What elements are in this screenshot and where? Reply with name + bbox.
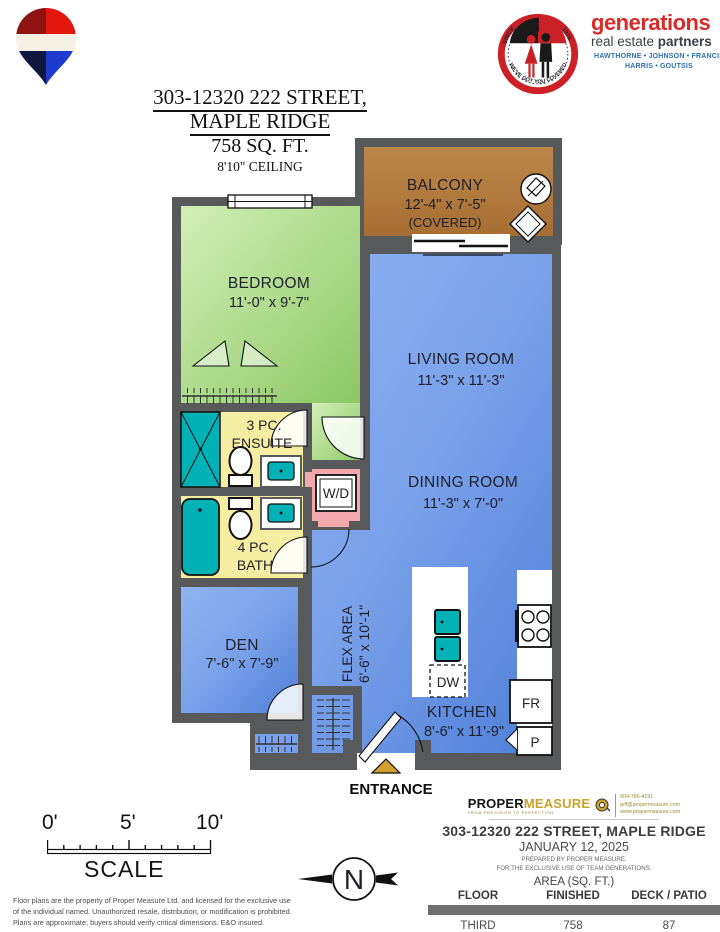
floor-plan-sheet: { "colors": { "wall": "#58595b", "bedroo… (0, 0, 720, 932)
floor-plan: BALCONY 12'-4" x 7'-5" (COVERED) BEDROOM… (165, 138, 565, 798)
entry-closet (256, 736, 297, 752)
flex-area-label: FLEX AREA (339, 605, 355, 682)
bedroom-label: BEDROOM (228, 275, 310, 292)
den-label: DEN (225, 637, 259, 654)
scale-label: SCALE (84, 856, 164, 883)
email: jeff@propermeasure.com (620, 802, 680, 810)
bath-label-line2: BATH (237, 557, 273, 573)
laundry-label: W/D (323, 486, 349, 501)
prepared-by-note: PREPARED BY PROPER MEASURE. FOR THE EXCL… (428, 856, 720, 874)
col-deck: DECK / PATIO (618, 890, 720, 902)
bedroom-window (228, 195, 312, 208)
bath-toilet-icon (229, 498, 252, 539)
listing-address-line2: MAPLE RIDGE (110, 110, 410, 134)
ensuite-label-line2: ENSUITE (232, 435, 293, 451)
dining-room-dims: 11'-3" x 7'-0" (423, 496, 503, 512)
balcony-sliding-door (412, 234, 510, 255)
logo-tagline: FROM PRECISION TO PERFECTION (468, 811, 591, 815)
scale-tick-10: 10' (196, 811, 223, 835)
shower-icon (181, 412, 220, 487)
brand-agents: HAWTHORNE • JOHNSON • FRANCIS HARRIS • G… (591, 52, 720, 73)
balcony-note: (COVERED) (409, 215, 482, 230)
balcony-label: BALCONY (407, 177, 483, 194)
ensuite-sink-icon (261, 456, 301, 487)
ensuite-toilet-icon (229, 447, 252, 486)
cell-finished: 758 (528, 920, 618, 932)
brokerage-logo: SINCE 1976 WE'VE GOT YOU COVERED generat… (492, 12, 720, 96)
table-separator-bar (428, 905, 720, 915)
stove-icon (515, 605, 551, 647)
col-finished: FINISHED (528, 890, 618, 902)
balcony-dims: 12'-4" x 7'-5" (404, 197, 485, 213)
living-room-label: LIVING ROOM (408, 351, 515, 368)
kitchen-label: KITCHEN (427, 704, 497, 721)
flex-area-dims: 6'-6" x 10'-1" (356, 605, 372, 683)
den-dims: 7'-6" x 7'-9" (205, 656, 278, 672)
brand-tagline: real estate partners (591, 34, 720, 50)
patio-table-icon (521, 174, 551, 204)
bath-sink-icon (261, 498, 301, 529)
bath-label-line1: 4 PC. (237, 539, 272, 555)
kitchen-dims: 8'-6" x 11'-9" (424, 724, 504, 740)
generations-badge-icon: SINCE 1976 WE'VE GOT YOU COVERED (492, 12, 584, 96)
pantry-label: P (530, 735, 539, 750)
scale-tick-5: 5' (120, 811, 136, 835)
compass-needle (298, 875, 332, 884)
north-compass: N (296, 855, 404, 907)
living-room-dims: 11'-3" x 11'-3" (417, 373, 504, 389)
website: www.propermeasure.com (620, 809, 680, 817)
bedroom-dims: 11'-0" x 9'-7" (229, 295, 309, 311)
listing-address-line1: 303-12320 222 STREET, (110, 86, 410, 110)
proper-measure-logo: PROPERMEASURE FROM PRECISION TO PERFECTI… (428, 794, 720, 817)
compass-north-label: N (344, 864, 364, 895)
area-heading: AREA (SQ. FT.) (428, 876, 720, 888)
map-pin-icon (12, 8, 80, 86)
scale-tick-0: 0' (42, 811, 58, 835)
phone: 604-786-4191 (620, 794, 680, 802)
dishwasher-label: DW (437, 675, 460, 690)
fridge-label: FR (522, 696, 540, 711)
footer-date: JANUARY 12, 2025 (428, 840, 720, 854)
divider (489, 819, 659, 820)
ensuite-label-line1: 3 PC. (246, 417, 281, 433)
contact-info: 604-786-4191 jeff@propermeasure.com www.… (615, 794, 680, 817)
compass-ribbon (376, 873, 398, 886)
entrance-label: ENTRANCE (349, 781, 432, 798)
dining-room-label: DINING ROOM (408, 474, 518, 491)
bathtub-icon (182, 499, 219, 575)
cell-floor: THIRD (428, 920, 528, 932)
cell-deck: 87 (618, 920, 720, 932)
brand-name: generations (591, 12, 720, 34)
footer-address: 303-12320 222 STREET, MAPLE RIDGE (428, 823, 720, 839)
col-floor: FLOOR (428, 890, 528, 902)
area-table-header: FLOOR FINISHED DECK / PATIO (428, 890, 720, 902)
kitchen-counter (517, 570, 552, 753)
tape-measure-icon (595, 798, 610, 813)
area-table-row: THIRD 758 87 (428, 920, 720, 932)
preparer-block: PROPERMEASURE FROM PRECISION TO PERFECTI… (428, 794, 720, 932)
disclaimer-text: Floor plans are the property of Proper M… (13, 896, 292, 929)
scale-ruler (47, 840, 213, 856)
